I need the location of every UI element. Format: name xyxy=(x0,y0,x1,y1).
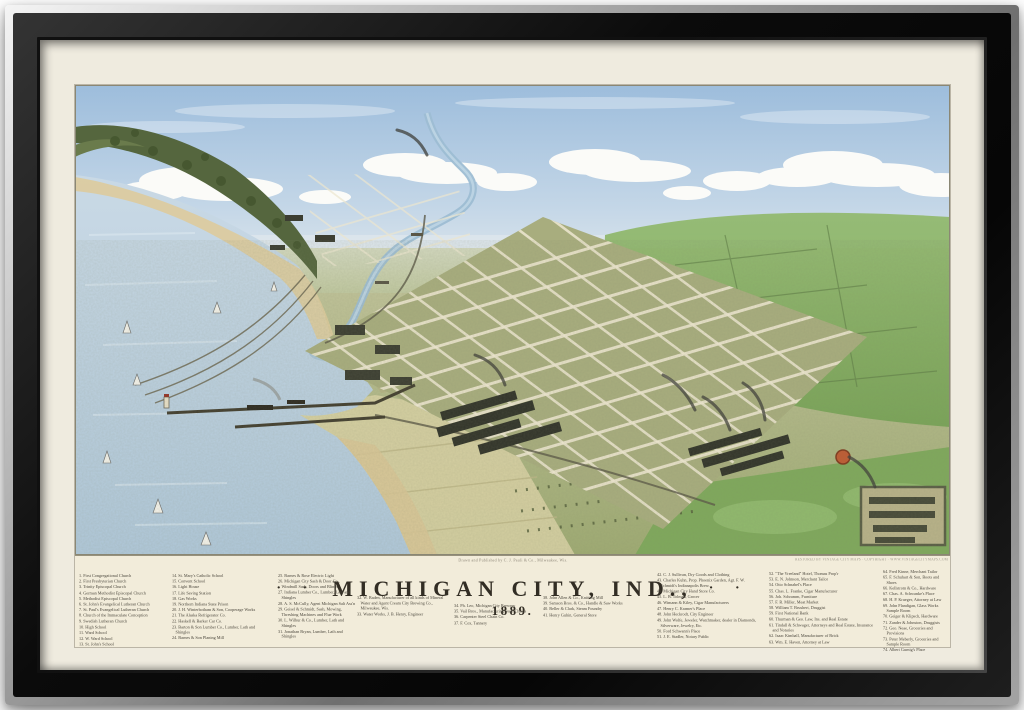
legend-entry: 23. Barton & Son Lumber Co., Lumber, Lat… xyxy=(172,625,264,636)
legend-entry: 49. John Wolfe, Jeweler, Watchmaker, dea… xyxy=(657,618,762,629)
legend-entry: 55. Chas. L. Franke, Cigar Manufacturer xyxy=(769,589,880,594)
legend-entry: 28. A. S. McCully, Agent Michigan Salt A… xyxy=(278,602,356,607)
framed-map-scene: Drawn and Published by C. J. Pauli & Co.… xyxy=(0,0,1024,710)
legend-column-1: 1. First Congregational Church2. First P… xyxy=(79,574,171,648)
legend-entry: 42. C. J. Sullivan, Dry Goods and Clothi… xyxy=(657,573,762,578)
legend-entry: 36. Carpenter Steel Chain Co. xyxy=(454,615,541,620)
restoration-credit: RESTORED BY VINTAGE CITY MAPS · COPYRIGH… xyxy=(795,558,948,562)
legend-entry: 21. The Alaska Refrigerator Co. xyxy=(172,614,264,619)
legend-entry: 18. Gas Works xyxy=(172,597,264,602)
map-print: Drawn and Published by C. J. Pauli & Co.… xyxy=(75,85,950,647)
legend-entry: 65. F. Schuhart & Son, Boots and Shoes xyxy=(883,576,949,587)
legend-entry: 27. Indiana Lumber Co., Lumber, Lath and… xyxy=(278,591,356,602)
birdseye-map-illustration xyxy=(75,85,950,556)
legend-entry: 62. Isaac Kimball, Manufacturer of Brick xyxy=(769,635,880,640)
legend-entry: 54. Otto Schnabel's Place xyxy=(769,583,880,588)
legend-entry: 56. Joh. Schramm, Furniture xyxy=(769,595,880,600)
legend-entry: 60. Thurman & Geo. Law, Ins. and Real Es… xyxy=(769,618,880,623)
legend-entry: 10. High School xyxy=(79,625,171,630)
legend-entry: 11. Ward School xyxy=(79,631,171,636)
legend-entry: 37. F. Cox, Tannery xyxy=(454,621,541,626)
legend-entry: 41. Henry Guhin, General Store xyxy=(543,613,638,618)
legend-entry: 26. Michigan City Sash & Door Co., Windm… xyxy=(278,580,356,591)
legend-entry: 19. Northern Indiana State Prison xyxy=(172,603,264,608)
legend-entry: 46. Wimann & Kiley, Cigar Manufacturers xyxy=(657,601,762,606)
legend-entry: 13. St. John's School xyxy=(79,643,171,648)
legend-entry: 5. Methodist Episcopal Church xyxy=(79,597,171,602)
legend-entry: 32. W. Baden, Manufacturer of all kinds … xyxy=(357,596,444,612)
publisher-line: Drawn and Published by C. J. Pauli & Co.… xyxy=(458,559,567,563)
legend-entry: 17. Life Saving Station xyxy=(172,591,264,596)
legend-entry: 4. German Methodist Episcopal Church xyxy=(79,591,171,596)
legend-entry: 6. St. John's Evangelical Lutheran Churc… xyxy=(79,603,171,608)
legend-entry: 48. John Heckrodt, City Engineer xyxy=(657,613,762,618)
legend-entry: 71. Zander & Johnston, Druggists xyxy=(883,621,949,626)
legend-entry: 59. First National Bank xyxy=(769,612,880,617)
legend-entry: 3. Trinity Episcopal Church xyxy=(79,585,171,590)
legend-entry: 31. Jonathan Bryan, Lumber, Lath and Shi… xyxy=(278,630,356,641)
legend-entry: 34. Ph. Leo, Michigan City Brewery xyxy=(454,604,541,609)
legend-entry: 73. Peter Meberly, Groceries and Sample … xyxy=(883,638,949,649)
legend-entry: 61. Tindall & Schwager, Attorneys and Re… xyxy=(769,623,880,634)
legend-column-6: 38. John Allen & Co., Knitting Mill39. S… xyxy=(543,596,638,619)
legend-entry: 22. Haskell & Barker Car Co. xyxy=(172,620,264,625)
legend-entry: 72. Geo. Neae, Groceries and Provisions xyxy=(883,627,949,638)
legend-column-2: 14. St. Mary's Catholic School15. Conven… xyxy=(172,574,264,642)
legend-entry: 39. Samson Bros. & Co., Handle & Saw Wor… xyxy=(543,602,638,607)
legend-entry: 24. Barnes & Son Planing Mill xyxy=(172,637,264,642)
legend-entry: 43. Charles Kuhn, Prop. Phoenix Garden, … xyxy=(657,579,762,590)
legend-column-9: 64. Fred Kinne, Merchant Tailor65. F. Sc… xyxy=(883,570,949,654)
legend-entry: 14. St. Mary's Catholic School xyxy=(172,574,264,579)
legend-column-8: 52. "The Vreeland" Hotel, Thomas Prop'r5… xyxy=(769,572,880,646)
legend-entry: 51. J. E. Stadler, Notary Public xyxy=(657,635,762,640)
print-texture xyxy=(75,240,950,555)
legend-entry: 29. Geisel & Schmidt, Sash, Mowing, Thre… xyxy=(278,608,356,619)
legend-column-7: 42. C. J. Sullivan, Dry Goods and Clothi… xyxy=(657,573,762,641)
legend-entry: 57. F. R. Miller, Meat Market xyxy=(769,601,880,606)
legend-entry: 66. Kellstrom & Co., Hardware xyxy=(883,587,949,592)
legend-entry: 16. Light House xyxy=(172,585,264,590)
legend-entry: 74. Albert Gurnig's Place xyxy=(883,649,949,654)
legend-entry: 68. H. P. Krueger, Attorney at Law xyxy=(883,598,949,603)
legend-entry: 38. John Allen & Co., Knitting Mill xyxy=(543,596,638,601)
legend-entry: 53. E. N. Johnson, Merchant Tailor xyxy=(769,578,880,583)
legend-entry: 20. J. H. Winterbotham & Son, Cooperage … xyxy=(172,608,264,613)
legend-entry: 69. John Flandigan, Glass Works Sample R… xyxy=(883,604,949,615)
legend-entry: 15. Convent School xyxy=(172,580,264,585)
legend-entry: 70. Geiger & Klipsch, Hardware xyxy=(883,615,949,620)
legend-column-4: 32. W. Baden, Manufacturer of all kinds … xyxy=(357,596,444,618)
legend-entry: 64. Fred Kinne, Merchant Tailor xyxy=(883,570,949,575)
legend-entry: 50. Ford Schwann's Place xyxy=(657,630,762,635)
legend-entry: 9. Swedish Lutheran Church xyxy=(79,620,171,625)
legend-entry: 8. Church of the Immaculate Conception xyxy=(79,614,171,619)
legend-entry: 47. Henry C. Kramer's Place xyxy=(657,607,762,612)
legend-entry: 2. First Presbyterian Church xyxy=(79,580,171,585)
legend-entry: 7. St. Paul's Evangelical Lutheran Churc… xyxy=(79,608,171,613)
legend-entry: 12. W. Ward School xyxy=(79,637,171,642)
legend-entry: 33. Water Works, J. B. Henry, Engineer xyxy=(357,612,444,617)
legend-entry: 44. Michigan City Hand Store Co. xyxy=(657,590,762,595)
legend-entry: 63. Wm. E. Haven, Attorney at Law xyxy=(769,640,880,645)
legend-entry: 52. "The Vreeland" Hotel, Thomas Prop'r xyxy=(769,572,880,577)
legend-entry: 25. Barnes & Rose Electric Light xyxy=(278,574,356,579)
legend-entry: 1. First Congregational Church xyxy=(79,574,171,579)
legend-entry: 35. Vail Bros., Manufacturing Steel Chai… xyxy=(454,610,541,615)
legend-entry: 30. L. Wilbur & Co., Lumber, Lath and Sh… xyxy=(278,619,356,630)
legend-entry: 58. William T. Brushert, Druggist xyxy=(769,606,880,611)
legend-entry: 40. Beller & Clark, Steam Foundry xyxy=(543,607,638,612)
legend-entry: 67. Chas. A. Schwanke's Place xyxy=(883,593,949,598)
legend-column-5: 34. Ph. Leo, Michigan City Brewery35. Va… xyxy=(454,604,541,627)
legend-strip: Drawn and Published by C. J. Pauli & Co.… xyxy=(75,556,950,647)
legend-column-3: 25. Barnes & Rose Electric Light26. Mich… xyxy=(278,574,356,641)
